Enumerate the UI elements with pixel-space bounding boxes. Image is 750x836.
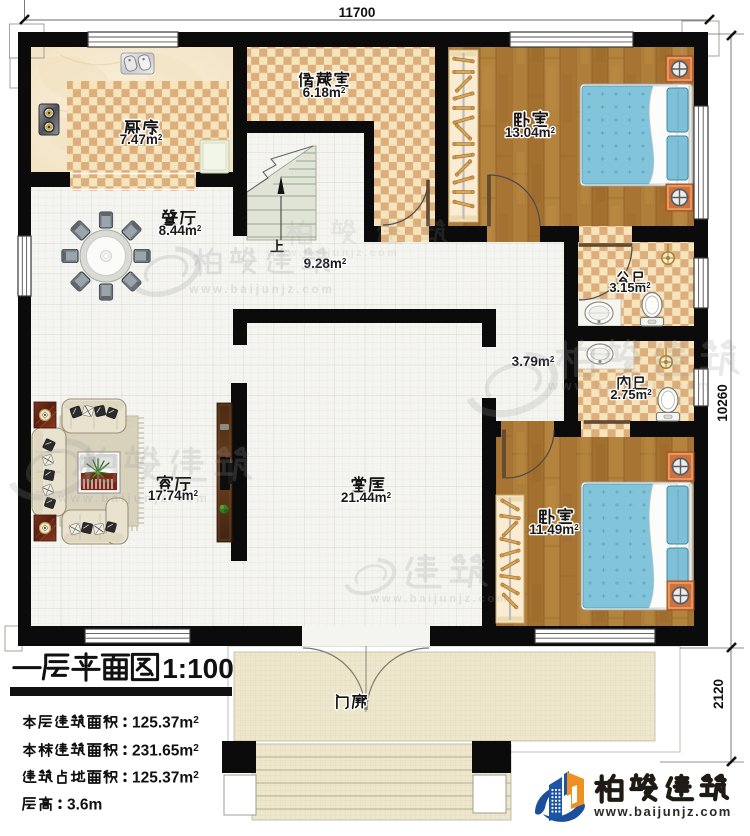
svg-text:www.baijunjz.com: www.baijunjz.com [593,804,732,819]
svg-text:3.15m2: 3.15m2 [609,280,651,295]
svg-text:www.baijunjz.com: www.baijunjz.com [370,593,510,605]
svg-text:125.37m2: 125.37m2 [132,715,199,732]
svg-text:3.6m: 3.6m [67,797,102,814]
svg-text:6.18m2: 6.18m2 [303,85,346,100]
svg-text:13.04m2: 13.04m2 [505,125,556,140]
svg-text:www.baijunjz.com: www.baijunjz.com [547,378,712,393]
svg-text:www.baijunjz.com: www.baijunjz.com [266,247,400,259]
svg-text:1:100: 1:100 [162,653,234,684]
svg-text:www.baijunjz.com: www.baijunjz.com [57,491,210,505]
svg-text:125.37m2: 125.37m2 [132,770,199,787]
svg-text:www.baijunjz.com: www.baijunjz.com [188,284,334,296]
svg-text:21.44m2: 21.44m2 [341,490,392,505]
svg-text:7.47m2: 7.47m2 [120,132,163,147]
svg-text:8.44m2: 8.44m2 [159,223,202,238]
svg-text:11700: 11700 [339,5,376,20]
svg-text:11.49m2: 11.49m2 [529,522,579,537]
svg-text:10260: 10260 [715,384,730,422]
svg-text:2120: 2120 [711,679,726,709]
svg-text:231.65m2: 231.65m2 [132,743,199,760]
